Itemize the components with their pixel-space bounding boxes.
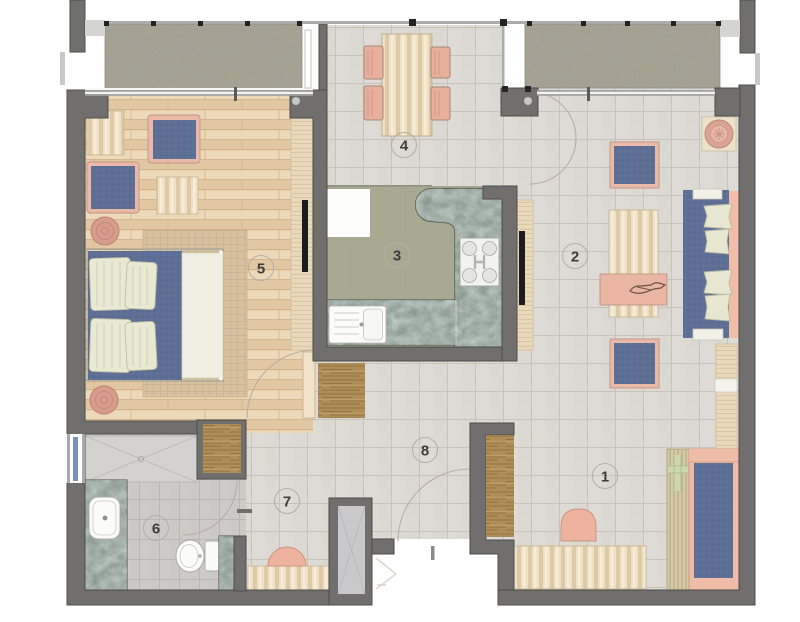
svg-text:3: 3 [393,248,401,265]
svg-text:8: 8 [421,443,429,460]
svg-text:5: 5 [257,261,265,278]
svg-text:2: 2 [571,249,579,266]
svg-text:1: 1 [601,469,609,486]
svg-text:4: 4 [400,138,409,155]
svg-text:6: 6 [152,521,160,538]
svg-text:7: 7 [283,494,291,511]
